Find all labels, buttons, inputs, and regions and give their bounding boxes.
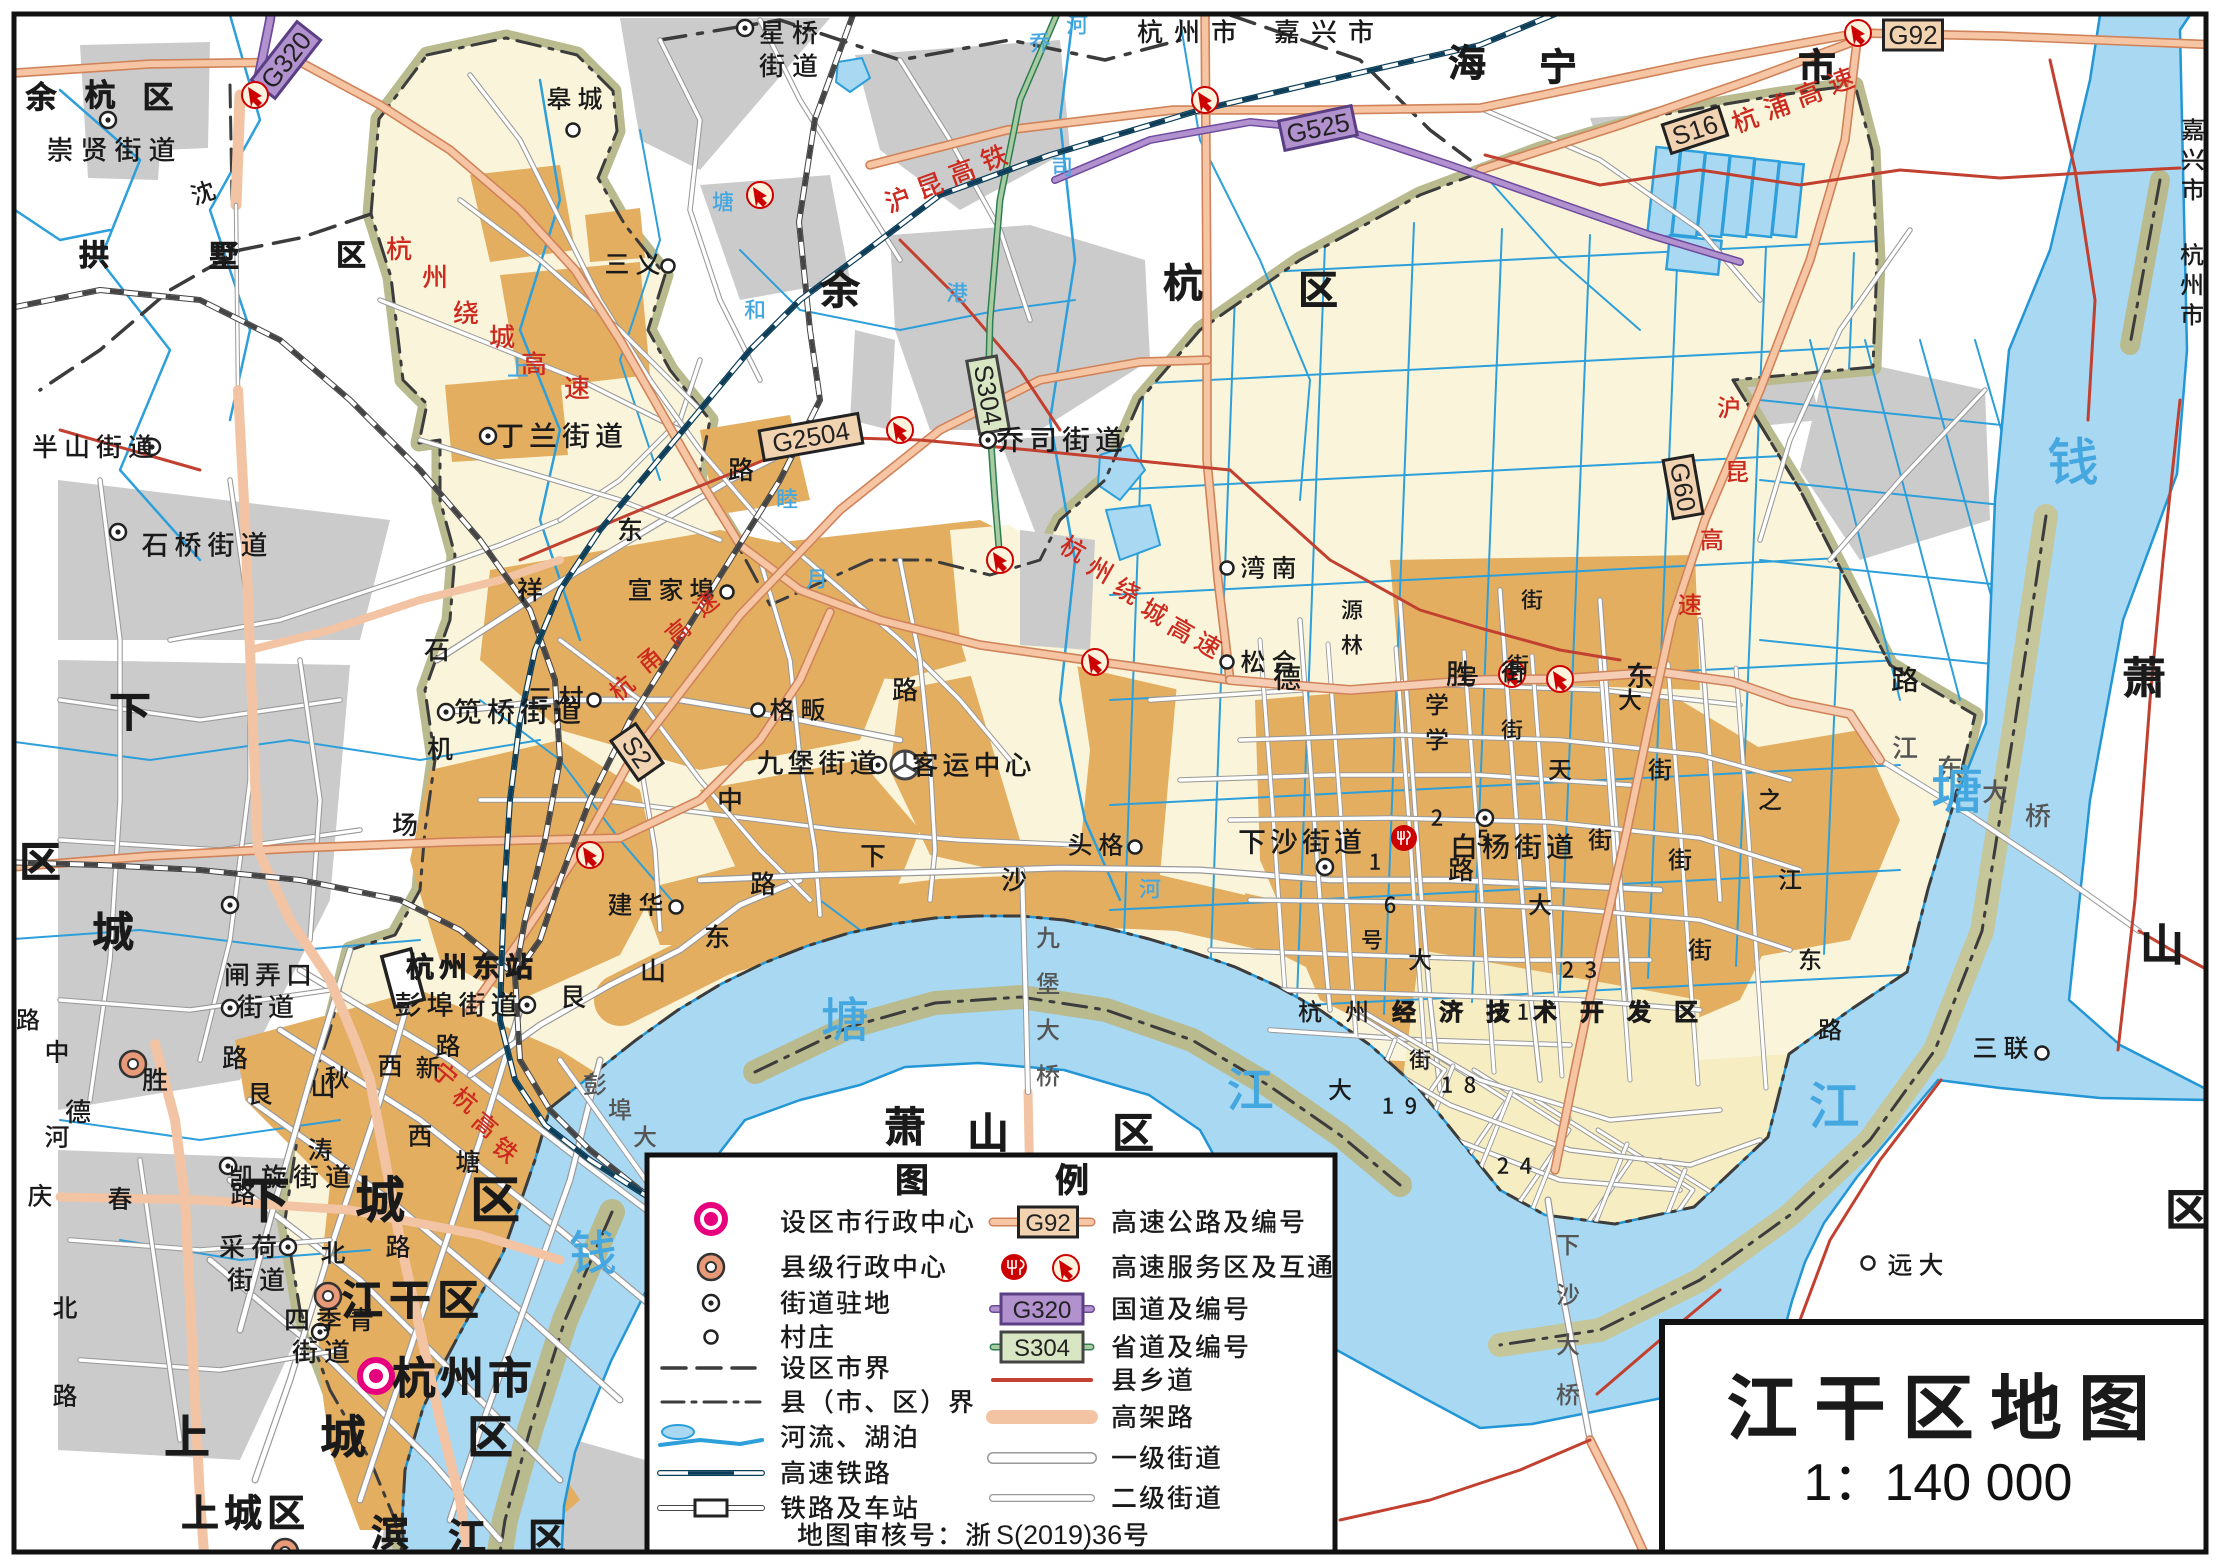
svg-text:G320: G320 — [1013, 1297, 1072, 1324]
svg-text:G92: G92 — [1888, 20, 1937, 50]
svg-text:G92: G92 — [1025, 1210, 1070, 1237]
svg-text:S304: S304 — [1014, 1335, 1070, 1362]
svg-text:S(2019)36: S(2019)36 — [996, 1520, 1122, 1550]
svg-text:1：140 000: 1：140 000 — [1804, 1454, 2073, 1512]
